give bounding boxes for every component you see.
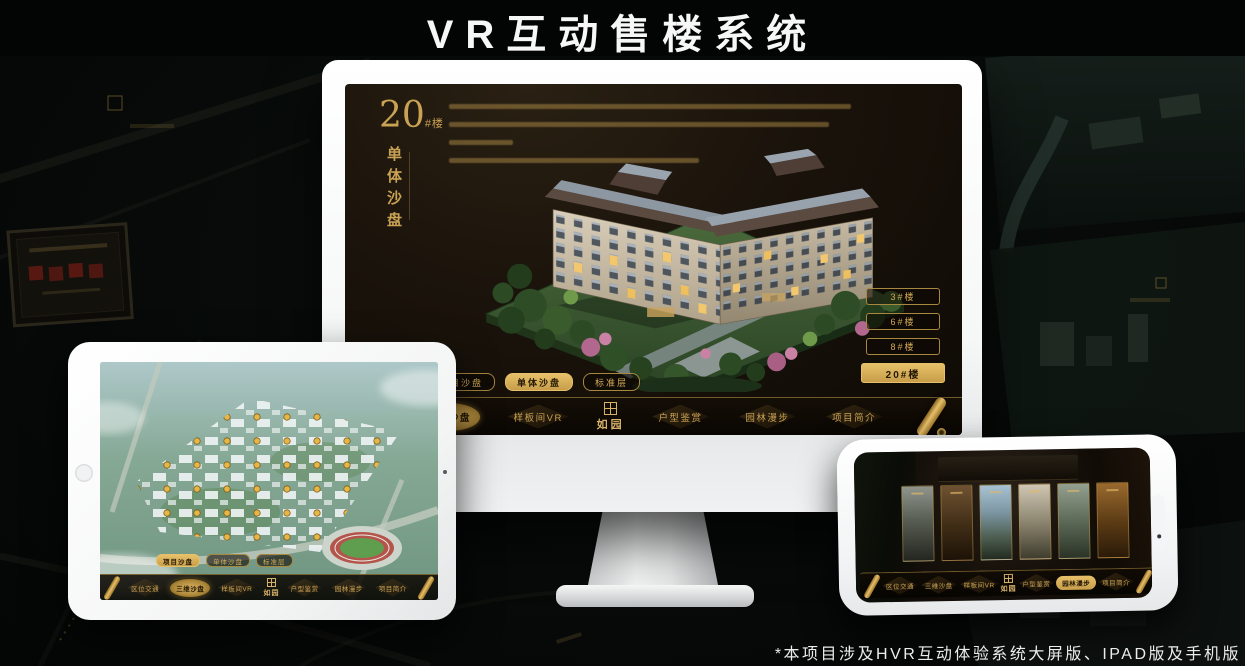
- subtab-project-sandbox[interactable]: 项目沙盘: [156, 554, 200, 567]
- nav-3d-sandbox[interactable]: 三维沙盘: [170, 579, 210, 597]
- scene-thumbnail[interactable]: [1018, 483, 1051, 560]
- phone-screen: 区位交通 三维沙盘 样板间VR 如园 户型鉴赏 园林漫步 项目简介: [854, 448, 1153, 603]
- nav-project-intro[interactable]: 项目简介: [823, 406, 885, 428]
- title-band: VR互动售楼系统: [0, 0, 1245, 56]
- scroll-decoration-left: [864, 575, 880, 597]
- nav-project-intro[interactable]: 项目简介: [1097, 573, 1135, 590]
- page-title: VR互动售楼系统: [0, 2, 1245, 60]
- seal-icon: [267, 578, 276, 587]
- heading-divider: [409, 152, 410, 220]
- nav-garden-walk[interactable]: 园林漫步: [1056, 575, 1096, 590]
- phone-device: 区位交通 三维沙盘 样板间VR 如园 户型鉴赏 园林漫步 项目简介: [836, 434, 1178, 616]
- brand-logo-text: 如园: [263, 588, 279, 598]
- ipad-camera-icon: [443, 470, 447, 474]
- ipad-screen: 项目沙盘 单体沙盘 标准层 区位交通 三维沙盘 样板间VR 如园 户型鉴赏 园林…: [100, 362, 438, 600]
- ipad-device: 项目沙盘 单体沙盘 标准层 区位交通 三维沙盘 样板间VR 如园 户型鉴赏 园林…: [68, 342, 456, 620]
- text-line: [449, 122, 829, 127]
- brand-logo: 如园: [1000, 573, 1016, 593]
- monitor-sub-tabs: 项目沙盘 单体沙盘 标准层: [427, 373, 640, 391]
- nav-unit-appreciation[interactable]: 户型鉴赏: [286, 580, 324, 596]
- scene-thumbnail[interactable]: [901, 485, 934, 562]
- scroll-menu-icon[interactable]: [910, 399, 952, 435]
- scene-gallery: [901, 482, 1129, 562]
- nav-project-intro[interactable]: 项目简介: [374, 580, 412, 596]
- floor-button-3[interactable]: 3#楼: [866, 288, 940, 305]
- scroll-decoration-left: [104, 577, 120, 599]
- brand-logo: 如园: [597, 402, 625, 432]
- floor-button-20-active[interactable]: 20#楼: [861, 363, 945, 383]
- scene-thumbnail[interactable]: [940, 485, 973, 562]
- nav-location-traffic[interactable]: 区位交通: [881, 577, 919, 594]
- subtab-single-sandbox[interactable]: 单体沙盘: [206, 554, 250, 567]
- floor-button-8[interactable]: 8#楼: [866, 338, 940, 355]
- nav-3d-sandbox[interactable]: 三维沙盘: [920, 576, 958, 593]
- nav-garden-walk[interactable]: 园林漫步: [736, 406, 798, 428]
- building-number-suffix: #楼: [425, 118, 444, 130]
- scene-thumbnail[interactable]: [1096, 482, 1129, 559]
- subtab-standard-floor[interactable]: 标准层: [256, 554, 293, 567]
- brand-logo: 如园: [263, 578, 279, 598]
- ipad-home-button[interactable]: [75, 464, 93, 482]
- text-line: [449, 104, 851, 109]
- section-title-vertical: 单体沙盘: [383, 146, 404, 234]
- nav-showroom-vr[interactable]: 样板间VR: [216, 580, 257, 596]
- nav-showroom-vr[interactable]: 样板间VR: [958, 576, 999, 593]
- nav-unit-appreciation[interactable]: 户型鉴赏: [649, 406, 711, 428]
- scene-thumbnail[interactable]: [1057, 483, 1090, 560]
- subtab-single-sandbox[interactable]: 单体沙盘: [505, 373, 573, 391]
- seal-icon: [1004, 573, 1013, 582]
- seal-icon: [604, 402, 617, 415]
- scene-thumbnail[interactable]: [979, 484, 1012, 561]
- building-heading: 20#楼: [379, 98, 444, 134]
- phone-camera-icon: [1157, 534, 1161, 538]
- brand-logo-text: 如园: [1000, 583, 1016, 593]
- monitor-stand-neck: [583, 511, 723, 589]
- building-model-illustration: [457, 148, 927, 392]
- phone-navbar: 区位交通 三维沙盘 样板间VR 如园 户型鉴赏 园林漫步 项目简介: [860, 567, 1152, 598]
- floor-selector: 3#楼 6#楼 8#楼 20#楼: [860, 288, 946, 383]
- floor-button-6[interactable]: 6#楼: [866, 313, 940, 330]
- nav-garden-walk[interactable]: 园林漫步: [330, 580, 368, 596]
- ipad-sub-tabs: 项目沙盘 单体沙盘 标准层: [156, 554, 293, 567]
- building-number: 20: [379, 95, 425, 136]
- monitor-stand-base: [556, 585, 754, 607]
- text-line: [449, 140, 513, 145]
- nav-showroom-vr[interactable]: 样板间VR: [505, 406, 572, 428]
- nav-location-traffic[interactable]: 区位交通: [126, 580, 164, 596]
- page: VR互动售楼系统 20#楼 单体沙盘: [0, 0, 1245, 666]
- nav-unit-appreciation[interactable]: 户型鉴赏: [1017, 575, 1055, 592]
- scroll-decoration-right: [1136, 570, 1152, 592]
- subtab-standard-floor[interactable]: 标准层: [583, 373, 640, 391]
- brand-logo-text: 如园: [597, 416, 625, 432]
- phone-notch: [1151, 494, 1165, 550]
- ipad-navbar: 区位交通 三维沙盘 样板间VR 如园 户型鉴赏 园林漫步 项目简介: [100, 574, 438, 600]
- interior-gate-beam: [938, 455, 1078, 482]
- footnote: *本项目涉及HVR互动体验系统大屏版、IPAD版及手机版: [775, 640, 1241, 664]
- scroll-decoration-right: [418, 577, 434, 599]
